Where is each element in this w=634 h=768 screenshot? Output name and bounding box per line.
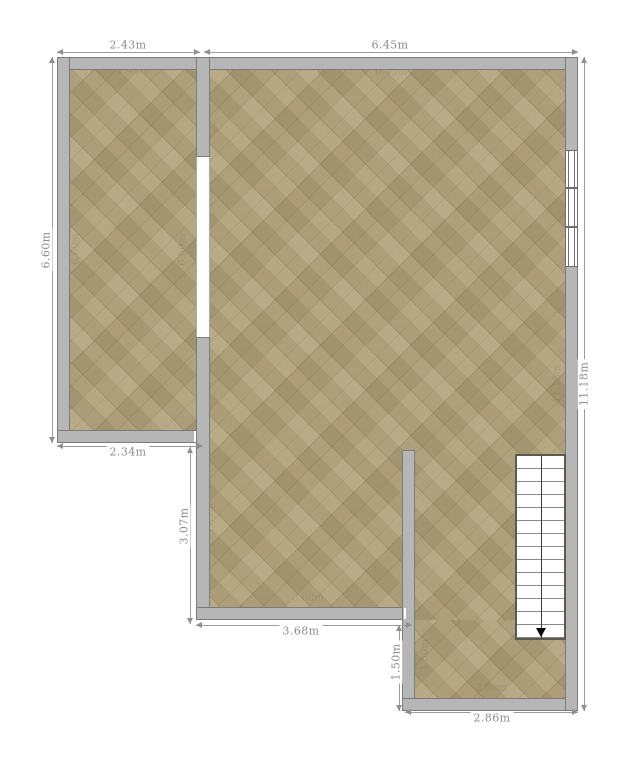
dimension-label-bottom-right-width: 2.86m (471, 712, 514, 725)
wall-middle-upper (196, 57, 210, 157)
staircase-walkline (541, 456, 542, 638)
window-glazing-lines (568, 151, 575, 266)
faint-interior-label: 6.60m (178, 234, 189, 266)
dimension-label-top-left-width: 2.43m (107, 39, 150, 52)
door-opening (196, 157, 210, 337)
faint-interior-label: 11.18m (552, 365, 563, 403)
faint-interior-label: 1.50m (420, 639, 431, 671)
dimension-label-bottom-middle-width: 3.68m (280, 625, 323, 638)
dimension-label-left-height: 6.60m (40, 229, 53, 272)
stairs-direction-arrow-icon (536, 628, 546, 637)
dimension-label-mid-left-height: 3.07m (178, 505, 191, 548)
dimension-line-top-right-width (204, 52, 578, 53)
wall-main-room-bottom (196, 607, 415, 620)
window (565, 150, 578, 267)
dimension-line-top-left-width (57, 52, 200, 53)
wall-junction-seam (194, 431, 196, 442)
wall-bottom-right-exterior (402, 698, 578, 711)
room-main-floor (210, 70, 565, 620)
faint-interior-label: 2.86m (475, 683, 507, 694)
wall-junction-seam (404, 608, 406, 619)
dimension-label-left-room-bottom-width: 2.34m (107, 446, 150, 459)
dimension-label-right-height: 11.18m (578, 359, 591, 409)
window-divider (566, 187, 577, 189)
dimension-label-top-right-width: 6.45m (369, 39, 412, 52)
window-divider (566, 226, 577, 228)
faint-interior-label: 3.68m (292, 593, 324, 604)
wall-left-exterior (57, 57, 70, 443)
staircase (515, 454, 566, 640)
floor-plan-canvas: 2.43m 6.45m 6.60m 6.60m 3.07m 3.68m 1.50… (0, 0, 634, 768)
wall-top-exterior (57, 57, 578, 70)
dimension-label-lower-notch-height: 1.50m (390, 641, 403, 684)
wall-middle-lower (196, 337, 210, 620)
wall-stairwell-partition (402, 450, 415, 711)
faint-interior-label: 6.60m (71, 233, 82, 265)
wall-left-room-bottom (57, 430, 210, 443)
